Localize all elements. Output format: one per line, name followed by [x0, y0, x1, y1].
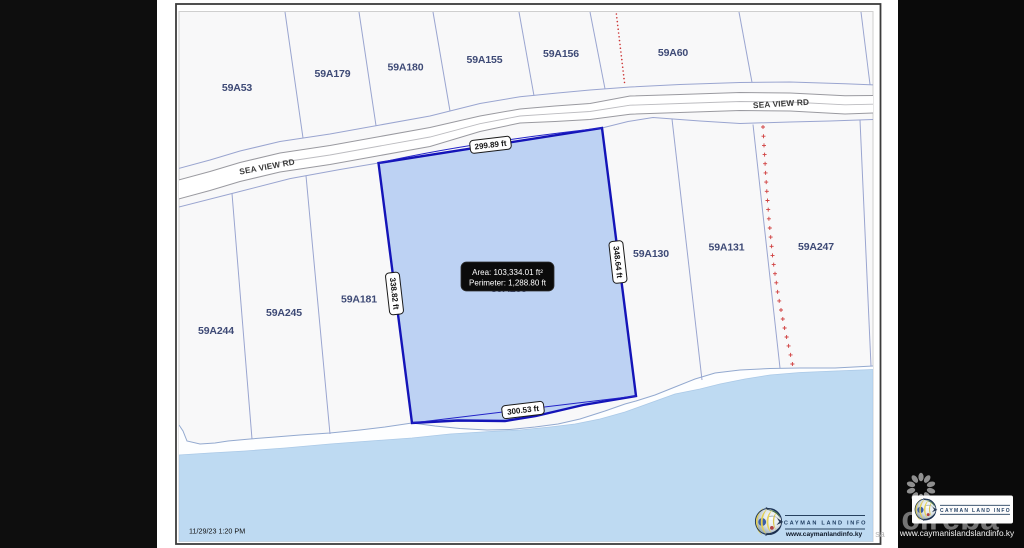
svg-text:59A244: 59A244 — [198, 325, 234, 337]
svg-text:59A247: 59A247 — [798, 241, 834, 253]
svg-text:Area: 103,334.01 ft²: Area: 103,334.01 ft² — [472, 268, 543, 277]
svg-text:59A130: 59A130 — [633, 248, 669, 260]
svg-text:59A60: 59A60 — [658, 47, 689, 59]
svg-text:59A245: 59A245 — [266, 307, 302, 319]
svg-text:www.caymanlandinfo.ky: www.caymanlandinfo.ky — [785, 531, 863, 538]
svg-text:CAYMAN LAND INFO: CAYMAN LAND INFO — [940, 508, 1011, 514]
svg-text:59A131: 59A131 — [709, 242, 745, 254]
svg-text:11/29/23 1:20 PM: 11/29/23 1:20 PM — [189, 527, 245, 536]
svg-text:Perimeter: 1,288.80 ft: Perimeter: 1,288.80 ft — [469, 279, 547, 288]
svg-text:59A53: 59A53 — [222, 82, 253, 94]
svg-text:sa: sa — [875, 529, 885, 539]
svg-text:59A179: 59A179 — [315, 68, 351, 80]
svg-text:59A156: 59A156 — [543, 48, 579, 60]
svg-text:59A181: 59A181 — [341, 294, 377, 306]
svg-text:www.caymanislandslandinfo.ky: www.caymanislandslandinfo.ky — [899, 528, 1015, 538]
svg-text:59A155: 59A155 — [467, 54, 503, 66]
svg-text:59A180: 59A180 — [388, 62, 424, 74]
svg-text:CAYMAN LAND INFO: CAYMAN LAND INFO — [784, 521, 867, 527]
